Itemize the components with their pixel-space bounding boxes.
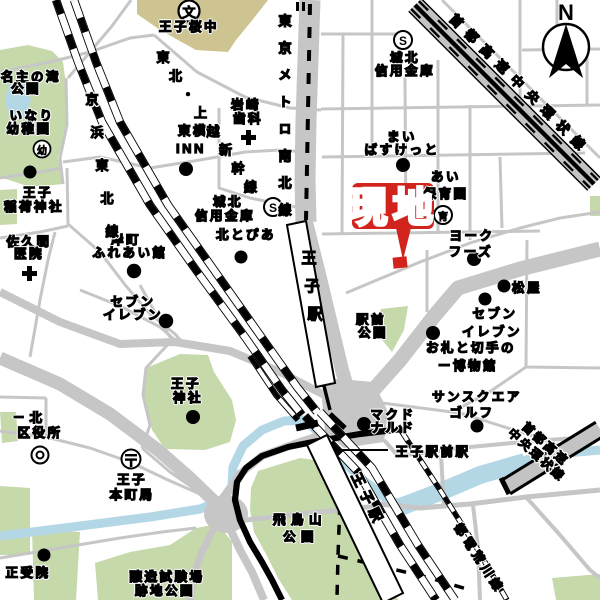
svg-text:ヨーク: ヨーク [449, 229, 494, 243]
svg-text:現地: 現地 [347, 186, 439, 230]
svg-text:区役所: 区役所 [17, 425, 62, 440]
svg-text:文: 文 [182, 5, 196, 20]
svg-text:ゴルフ: ゴルフ [449, 405, 494, 420]
svg-text:ナルド: ナルド [370, 421, 415, 435]
svg-text:医院: 医院 [14, 246, 44, 261]
svg-text:信用金庫: 信用金庫 [375, 63, 435, 78]
svg-text:サンスクエア: サンスクエア [432, 390, 522, 404]
svg-text:子: 子 [304, 278, 319, 295]
svg-text:セブン: セブン [472, 306, 517, 321]
svg-text:ー博物館: ー博物館 [438, 358, 498, 373]
svg-text:ばすけっと: ばすけっと [364, 142, 439, 157]
svg-text:本町局: 本町局 [109, 487, 154, 502]
svg-text:線: 線 [244, 180, 258, 195]
svg-text:お札と切手の: お札と切手の [426, 340, 516, 355]
svg-text:N: N [558, 0, 574, 25]
svg-text:王子: 王子 [23, 186, 53, 200]
svg-text:ふれあい館: ふれあい館 [92, 245, 167, 260]
svg-text:まい: まい [387, 130, 417, 144]
svg-text:セブン: セブン [110, 294, 155, 309]
svg-text:醸造試験場: 醸造試験場 [129, 569, 204, 584]
svg-text:跡地公園: 跡地公園 [135, 583, 195, 598]
svg-text:城北: 城北 [213, 194, 243, 209]
svg-text:・: ・ [181, 87, 194, 102]
svg-text:上: 上 [194, 106, 207, 121]
svg-text:あい: あい [431, 170, 461, 184]
svg-text:イレブン: イレブン [462, 324, 522, 339]
svg-text:幼: 幼 [37, 144, 47, 157]
svg-text:幹: 幹 [231, 161, 245, 176]
svg-text:育: 育 [438, 210, 448, 223]
svg-text:マクド: マクド [370, 408, 415, 422]
svg-text:王子桜中: 王子桜中 [159, 19, 219, 34]
svg-text:京: 京 [85, 92, 98, 107]
svg-text:北: 北 [169, 69, 182, 84]
svg-text:イレブン: イレブン [103, 307, 163, 322]
svg-text:幼稚園: 幼稚園 [6, 121, 51, 136]
svg-text:越: 越 [205, 124, 220, 139]
svg-text:浜: 浜 [90, 125, 103, 140]
svg-text:北: 北 [29, 410, 44, 425]
svg-text:信用金庫: 信用金庫 [195, 208, 255, 223]
svg-text:駅前: 駅前 [355, 312, 386, 327]
svg-text:いなり: いなり [9, 109, 54, 123]
svg-text:飛鳥山: 飛鳥山 [272, 512, 327, 527]
svg-text:北とぴあ: 北とぴあ [216, 227, 276, 242]
svg-text:王子駅前駅: 王子駅前駅 [395, 444, 470, 459]
svg-text:稲荷神社: 稲荷神社 [4, 199, 64, 214]
svg-text:王子: 王子 [171, 377, 201, 391]
svg-text:東京メトロ南北線: 東京メトロ南北線 [277, 13, 292, 230]
svg-text:東: 東 [95, 158, 108, 173]
svg-text:松屋: 松屋 [512, 280, 542, 295]
svg-text:正受院: 正受院 [5, 565, 50, 580]
svg-text:INN: INN [176, 141, 206, 156]
svg-text:公園: 公園 [283, 530, 319, 544]
svg-text:歯科: 歯科 [233, 111, 263, 126]
svg-text:公園: 公園 [11, 82, 41, 96]
svg-text:岩崎: 岩崎 [230, 97, 261, 112]
svg-text:東: 東 [156, 50, 169, 65]
svg-text:王子: 王子 [117, 473, 147, 487]
svg-text:フーズ: フーズ [449, 244, 493, 259]
svg-text:北: 北 [100, 191, 113, 206]
svg-text:城北: 城北 [390, 50, 420, 65]
svg-text:線: 線 [105, 224, 119, 239]
svg-text:S: S [399, 34, 407, 48]
svg-text:東横: 東横 [178, 123, 208, 138]
svg-text:公園: 公園 [358, 326, 388, 340]
svg-text:新: 新 [219, 143, 232, 158]
svg-text:神社: 神社 [173, 390, 203, 405]
svg-text:駅: 駅 [306, 306, 323, 323]
svg-text:ー: ー [13, 412, 27, 424]
svg-text:王: 王 [301, 250, 316, 267]
